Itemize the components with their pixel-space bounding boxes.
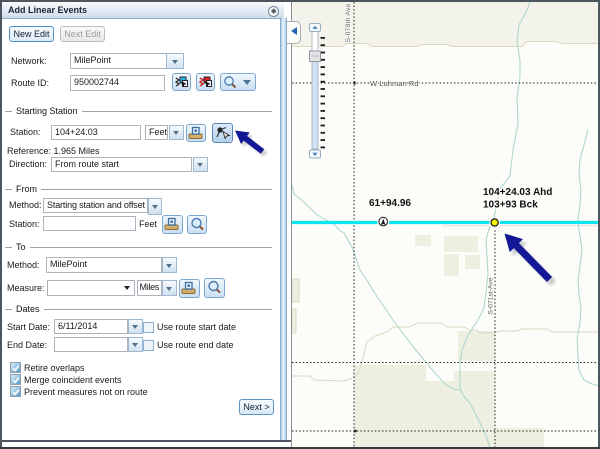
svg-text:104+24.03 Ahd: 104+24.03 Ahd	[483, 187, 552, 198]
svg-text:S-071st-Ave: S-071st-Ave	[488, 277, 495, 314]
svg-text:W Luhman Rd: W Luhman Rd	[370, 79, 419, 88]
svg-text:103+93 Bck: 103+93 Bck	[483, 200, 538, 211]
svg-text:61+94.96: 61+94.96	[369, 198, 411, 209]
svg-text:S-078th Ave: S-078th Ave	[345, 3, 352, 42]
